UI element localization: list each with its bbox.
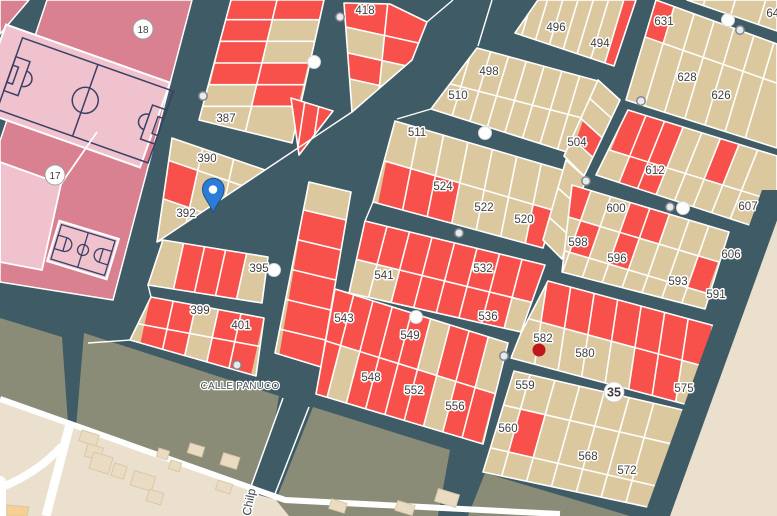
svg-text:631: 631	[654, 16, 673, 28]
svg-text:390: 390	[197, 153, 216, 165]
svg-text:CALLE PANUCO: CALLE PANUCO	[201, 381, 280, 392]
svg-text:524: 524	[433, 181, 453, 193]
svg-text:628: 628	[677, 72, 696, 84]
svg-text:541: 541	[374, 270, 393, 282]
svg-text:556: 556	[445, 401, 464, 413]
svg-text:640: 640	[766, 8, 777, 20]
svg-text:399: 399	[190, 305, 209, 317]
svg-text:572: 572	[617, 465, 636, 477]
svg-text:575: 575	[674, 383, 693, 395]
svg-text:548: 548	[361, 372, 380, 384]
svg-text:392: 392	[176, 208, 195, 220]
svg-text:559: 559	[515, 380, 534, 392]
svg-text:387: 387	[216, 113, 235, 125]
svg-text:17: 17	[49, 171, 61, 182]
svg-text:568: 568	[578, 451, 597, 463]
svg-text:532: 532	[473, 263, 492, 275]
svg-text:418: 418	[355, 5, 374, 17]
svg-text:35: 35	[607, 386, 621, 400]
svg-text:520: 520	[514, 214, 533, 226]
svg-text:552: 552	[404, 385, 423, 397]
svg-text:498: 498	[479, 66, 498, 78]
svg-text:598: 598	[568, 237, 587, 249]
svg-text:536: 536	[478, 311, 497, 323]
svg-text:504: 504	[567, 137, 587, 149]
svg-text:395: 395	[249, 263, 268, 275]
svg-text:549: 549	[400, 330, 419, 342]
svg-text:560: 560	[498, 423, 517, 435]
svg-text:593: 593	[668, 276, 687, 288]
svg-text:606: 606	[721, 249, 740, 261]
svg-text:510: 510	[448, 90, 467, 102]
svg-text:582: 582	[533, 333, 552, 345]
svg-text:511: 511	[408, 127, 426, 139]
svg-text:600: 600	[606, 203, 625, 215]
svg-text:580: 580	[575, 348, 594, 360]
svg-text:596: 596	[607, 253, 626, 265]
svg-text:612: 612	[645, 165, 664, 177]
svg-text:626: 626	[711, 90, 730, 102]
svg-text:401: 401	[231, 320, 250, 332]
svg-text:543: 543	[334, 313, 353, 325]
svg-text:591: 591	[706, 289, 725, 301]
svg-text:18: 18	[137, 25, 149, 36]
svg-text:494: 494	[590, 38, 610, 50]
svg-text:607: 607	[738, 201, 757, 213]
svg-text:496: 496	[546, 22, 565, 34]
svg-text:522: 522	[474, 202, 493, 214]
